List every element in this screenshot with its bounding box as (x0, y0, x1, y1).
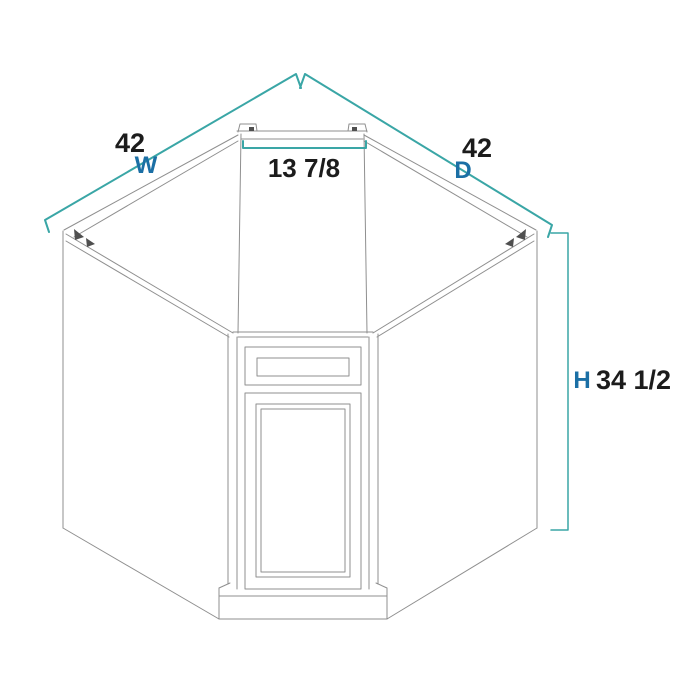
front-width-dimension-line (243, 141, 366, 148)
width-dimension-line (45, 74, 301, 232)
bottom-left-edge (63, 528, 219, 619)
bottom-right-edge (387, 528, 537, 619)
width-letter-label: W (135, 152, 158, 179)
drawer-slot (257, 358, 349, 376)
depth-letter-label: D (454, 157, 471, 184)
cabinet-line-drawing: 42 W 42 D 13 7/8 H 34 1/2 (0, 0, 700, 700)
right-inner-diagonal (373, 234, 534, 337)
corner-sink-base-cabinet-diagram: 42 W 42 D 13 7/8 H 34 1/2 (0, 0, 700, 700)
height-value-label: 34 1/2 (596, 365, 671, 395)
height-letter-label: H (573, 367, 590, 394)
back-panel-top-band (237, 131, 367, 139)
door-recessed-panel (256, 404, 350, 577)
left-corner-clip-mark (74, 229, 95, 247)
front-width-value-label: 13 7/8 (268, 153, 340, 183)
back-panel-right-edge (364, 134, 367, 333)
height-dimension-bracket (551, 233, 568, 530)
door-front (245, 393, 361, 589)
right-top-edge (364, 135, 536, 237)
face-top-rails (233, 332, 373, 337)
right-corner-clip-mark (505, 229, 526, 247)
left-inner-diagonal (66, 234, 233, 337)
back-panel-left-edge (238, 134, 241, 333)
toe-kick (219, 583, 387, 619)
drawer-front (245, 347, 361, 385)
left-top-edge (64, 135, 238, 237)
face-corner-stiles (228, 334, 378, 589)
back-panel-clip-dots (249, 127, 357, 131)
cabinet-outline (63, 124, 537, 619)
